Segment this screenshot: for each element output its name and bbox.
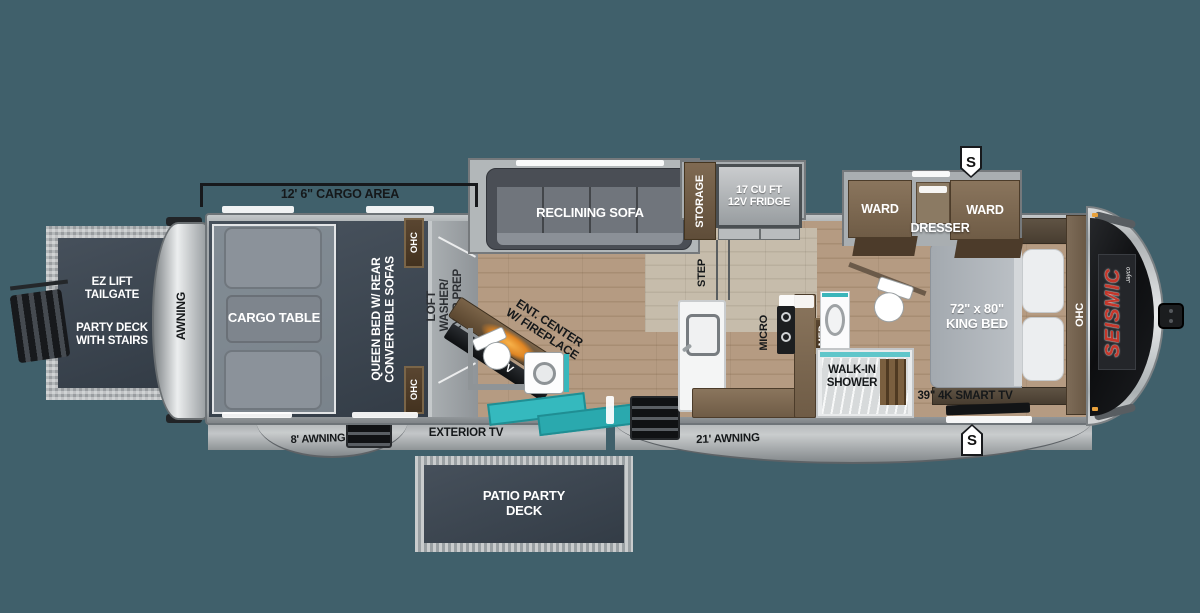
bed-pillow-top xyxy=(1022,249,1064,313)
fridge-door-split xyxy=(759,229,761,239)
kitchen-counter-right xyxy=(794,294,816,418)
exterior-tv-label: EXTERIOR TV xyxy=(420,427,512,440)
storage-label: STORAGE xyxy=(694,175,706,228)
entry-door xyxy=(606,396,614,424)
floorplan-canvas: PATIO PARTY DECK EXTERIOR TV 8' AWNING 2… xyxy=(0,0,1200,613)
step-rail-left xyxy=(716,240,718,300)
halfbath-wall-vert xyxy=(468,328,473,390)
ward-left-shadow xyxy=(852,236,918,256)
party-deck-label: PARTY DECK WITH STAIRS xyxy=(64,322,160,348)
entry-steps xyxy=(630,396,680,440)
s-badge-bottom-letter: S xyxy=(963,426,981,454)
ohc-bottom-label: OHC xyxy=(409,379,420,400)
walkin-shower: WALK-IN SHOWER xyxy=(816,348,914,418)
loft-label: LOFT xyxy=(425,291,438,322)
rear-awning-label: AWNING xyxy=(175,292,188,340)
party-deck-surface xyxy=(58,238,166,388)
cargo-sofa-cushion-top xyxy=(224,227,322,289)
sofa-front-edge xyxy=(497,233,683,245)
vanity-teal-edge xyxy=(822,293,848,297)
micro-label-holder: MICRO xyxy=(756,308,772,358)
bed-pillow-bottom xyxy=(1022,317,1064,381)
cargo-window-top-1 xyxy=(222,206,294,213)
cargo-dimension-tick-right xyxy=(475,183,478,207)
dresser-label: DRESSER xyxy=(904,221,976,235)
cargo-window-bottom-2 xyxy=(352,412,418,418)
walkin-shower-label: WALK-IN SHOWER xyxy=(823,364,881,390)
shower-shelves xyxy=(880,359,906,405)
hitch-dot-1 xyxy=(1169,309,1173,313)
marker-light-bottom xyxy=(1092,407,1098,411)
patio-party-deck-surface: PATIO PARTY DECK xyxy=(424,465,624,543)
cargo-sofa-cushion-bottom xyxy=(224,350,322,410)
patio-party-deck-label: PATIO PARTY DECK xyxy=(469,489,579,518)
deck-stairs xyxy=(10,289,71,364)
ohc-cabinet-bottom: OHC xyxy=(404,366,424,414)
dresser-top xyxy=(919,186,947,193)
fridge: 17 CU FT 12V FRIDGE xyxy=(716,164,802,228)
ward-right-shadow xyxy=(954,238,1024,258)
brand-label-holder: SEISMIC xyxy=(1100,252,1126,374)
hitch-dot-2 xyxy=(1169,319,1173,323)
burner-1 xyxy=(781,312,791,322)
sofa-slide-window xyxy=(516,160,664,166)
marker-light-top xyxy=(1092,213,1098,217)
vanity-sink xyxy=(825,304,845,336)
fridge-label-line2: 12V FRIDGE xyxy=(728,196,790,208)
cargo-dimension-label: 12' 6" CARGO AREA xyxy=(250,187,430,201)
step-rail-right xyxy=(728,240,730,300)
patio-party-deck: PATIO PARTY DECK xyxy=(415,456,633,552)
cargo-window-bottom-1 xyxy=(222,412,292,418)
queen-bed-label-line1: QUEEN BED W/ REAR xyxy=(370,256,383,383)
washer-door xyxy=(533,362,556,385)
dresser-window xyxy=(912,171,950,177)
king-bed-label-line2: KING BED xyxy=(934,317,1020,332)
headboard-ohc-label: OHC xyxy=(1074,303,1086,327)
ez-lift-tailgate-label: EZ LIFT TAILGATE xyxy=(70,276,154,302)
s-badge-top-letter: S xyxy=(962,148,980,176)
burner-2 xyxy=(781,332,791,342)
brand-sub-holder: Jayco xyxy=(1124,258,1134,292)
washer-teal-edge xyxy=(564,354,569,392)
cargo-window-top-2 xyxy=(366,206,434,213)
step-label: STEP xyxy=(696,259,708,287)
reclining-sofa-label: RECLINING SOFA xyxy=(500,206,680,221)
hitch-pin xyxy=(1158,303,1184,329)
step-label-holder: STEP xyxy=(694,250,710,296)
ohc-top-label: OHC xyxy=(409,232,420,253)
cargo-dimension-tick-left xyxy=(200,183,203,207)
bedroom-window xyxy=(946,416,1032,423)
ward-right-label: WARD xyxy=(966,203,1003,217)
brand-label: SEISMIC xyxy=(1102,268,1125,357)
smart-tv-label: 39" 4K SMART TV xyxy=(912,390,1018,403)
rear-awning-label-holder: AWNING xyxy=(166,275,198,357)
brand-sub-label: Jayco xyxy=(1126,267,1132,283)
storage-cabinet: STORAGE xyxy=(684,162,716,240)
washer xyxy=(524,352,564,394)
ward-left: WARD xyxy=(848,180,912,238)
dresser xyxy=(916,182,950,224)
king-bed-label: 72" x 80" KING BED xyxy=(934,302,1020,331)
kitchen-sink xyxy=(686,314,720,356)
king-bed-label-line1: 72" x 80" xyxy=(934,302,1020,317)
bath-vanity xyxy=(820,291,850,349)
ward-left-label: WARD xyxy=(861,202,898,216)
queen-bed-label: QUEEN BED W/ REAR CONVERTIBLE SOFAS xyxy=(370,256,397,383)
micro-label: MICRO xyxy=(758,315,770,351)
fridge-doors xyxy=(718,228,800,240)
cargo-dimension-line xyxy=(200,183,478,186)
cargo-table-label: CARGO TABLE xyxy=(216,311,332,326)
ohc-cabinet-top: OHC xyxy=(404,218,424,268)
fridge-label-line1: 17 CU FT xyxy=(728,184,790,196)
queen-bed-label-line2: CONVERTIBLE SOFAS xyxy=(383,256,396,383)
fridge-label: 17 CU FT 12V FRIDGE xyxy=(728,184,790,209)
shower-teal-edge xyxy=(820,352,910,357)
stove xyxy=(777,306,795,354)
